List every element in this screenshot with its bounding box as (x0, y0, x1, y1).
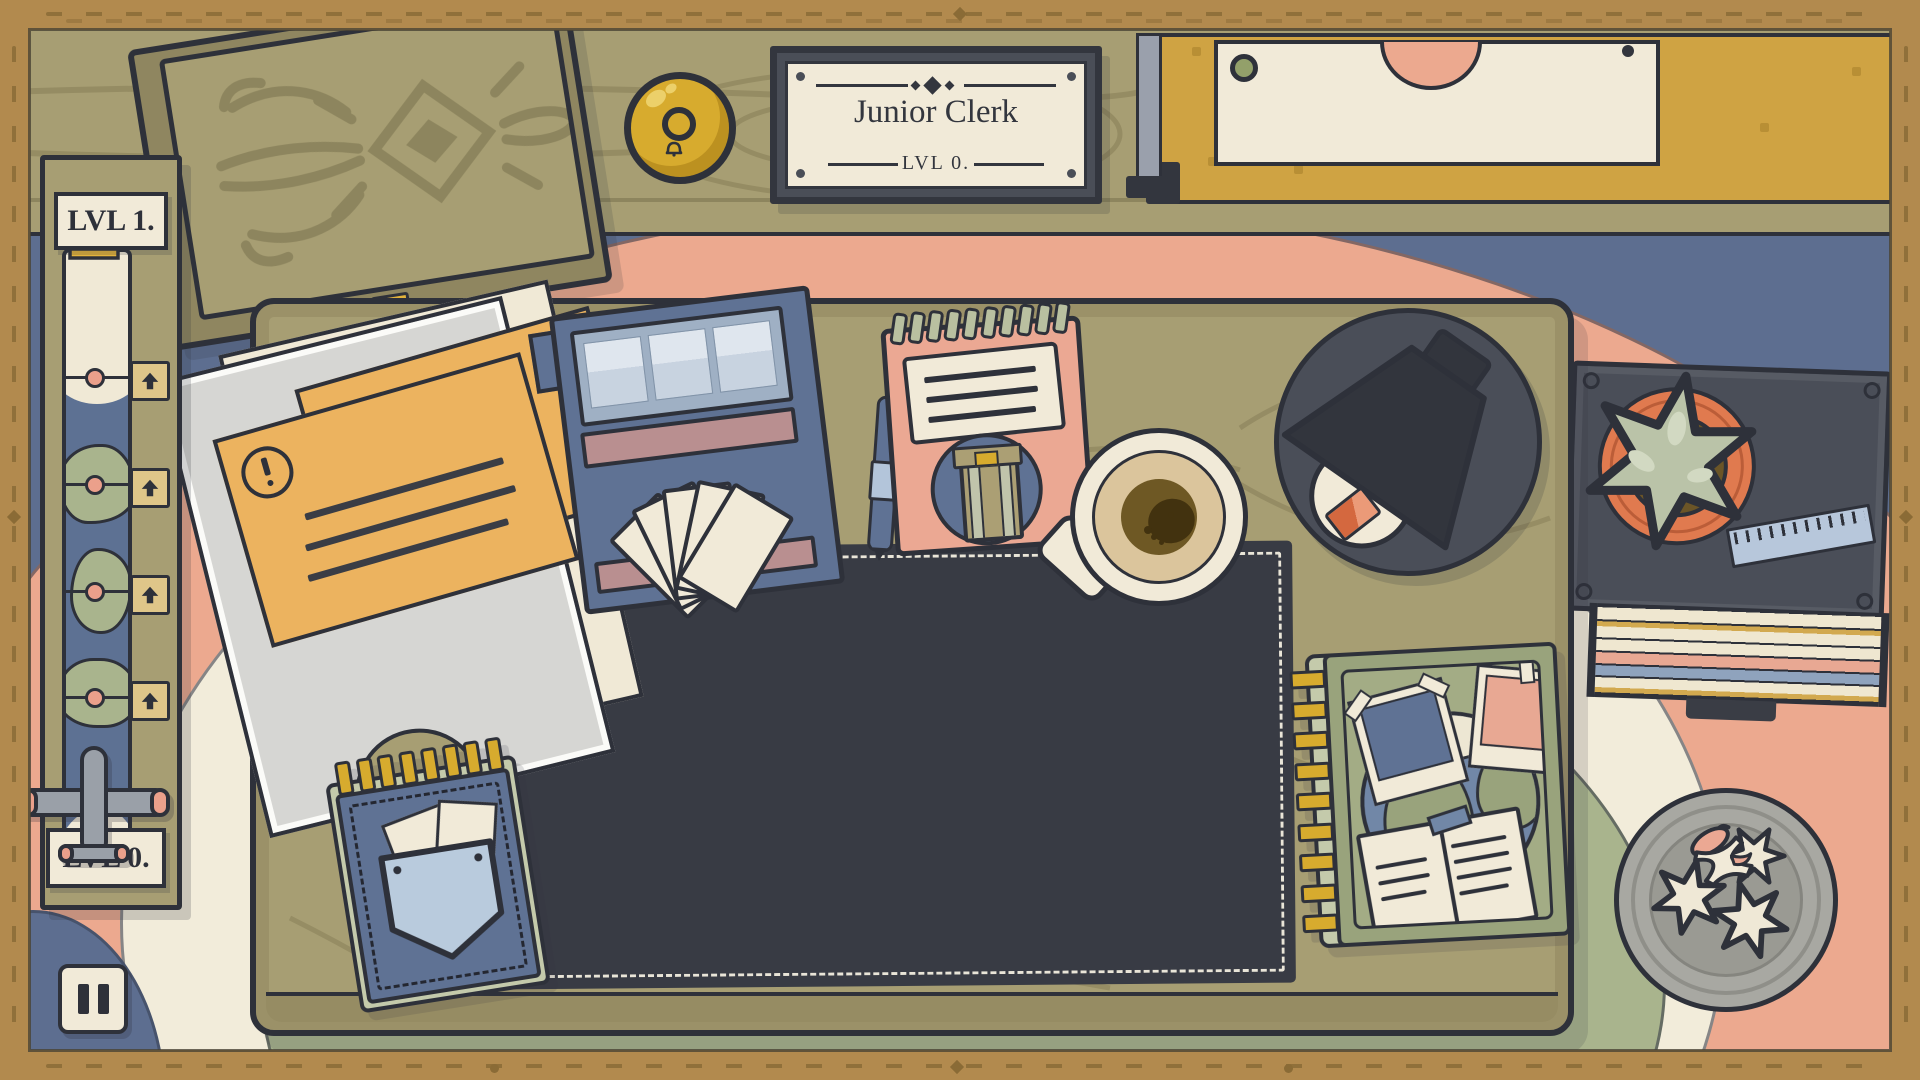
nameplate-face: Junior Clerk LVL 0. (785, 61, 1087, 189)
board-stand-pole (1136, 33, 1162, 187)
pause-icon (78, 984, 89, 1014)
pink-peek-shape (1380, 42, 1482, 90)
box-lid (159, 0, 595, 320)
card-fan[interactable] (574, 438, 819, 605)
up-arrow-button[interactable] (130, 468, 170, 508)
coffee-surface (1121, 479, 1197, 555)
pushpin-icon (1622, 45, 1634, 57)
paper-stack[interactable] (1586, 603, 1889, 707)
cookie-plate[interactable] (1614, 788, 1838, 1012)
bell-knob (662, 107, 696, 141)
mat-dashed-border (509, 552, 1285, 979)
nameplate-level: LVL 0. (788, 152, 1084, 175)
clasp-icon (974, 450, 999, 467)
board-stand-foot (1126, 176, 1168, 198)
up-arrow-icon (139, 370, 161, 392)
up-arrow-icon (139, 584, 161, 606)
exclamation-icon (235, 440, 299, 504)
denim-cover (335, 768, 542, 1005)
desk-nameplate: Junior Clerk LVL 0. (770, 46, 1102, 204)
game-scene: Junior Clerk LVL 0. (0, 0, 1920, 1080)
up-arrow-button[interactable] (130, 575, 170, 615)
milestone-dot (85, 368, 105, 388)
service-bell-button[interactable] (624, 72, 736, 184)
pushpin-icon (1230, 54, 1258, 82)
carving-pattern-icon (164, 3, 588, 311)
milestone-dot (85, 582, 105, 602)
bulletin-board (1158, 33, 1920, 204)
polaroid-photo (1468, 664, 1554, 776)
up-arrow-icon (139, 690, 161, 712)
milestone-dot (85, 688, 105, 708)
up-arrow-button[interactable] (130, 361, 170, 401)
up-arrow-icon (139, 477, 161, 499)
pen-tip (872, 547, 887, 561)
level-top-label: LVL 1. (54, 192, 168, 250)
suitcase-icon (959, 457, 1025, 543)
luggage-badge (927, 429, 1047, 549)
travel-journal[interactable] (1304, 642, 1571, 949)
notepad-label (902, 341, 1066, 445)
pinned-paper[interactable] (1214, 40, 1660, 166)
up-arrow-button[interactable] (130, 681, 170, 721)
card-binder[interactable] (549, 285, 846, 615)
denim-pocket (374, 834, 513, 972)
nameplate-title: Junior Clerk (788, 94, 1084, 131)
denim-notepad[interactable] (325, 754, 551, 1013)
desk-lamp[interactable] (1274, 308, 1542, 576)
bell-icon (664, 139, 684, 157)
milestone-dot (85, 475, 105, 495)
stack-foot (1686, 698, 1777, 721)
journal-cover (1322, 642, 1571, 948)
pause-button[interactable] (58, 964, 128, 1034)
airplane-icon (18, 742, 170, 876)
lamp-shade-icon (1279, 313, 1527, 561)
card-window-panel (570, 306, 794, 427)
coffee-cup[interactable] (1070, 428, 1248, 606)
